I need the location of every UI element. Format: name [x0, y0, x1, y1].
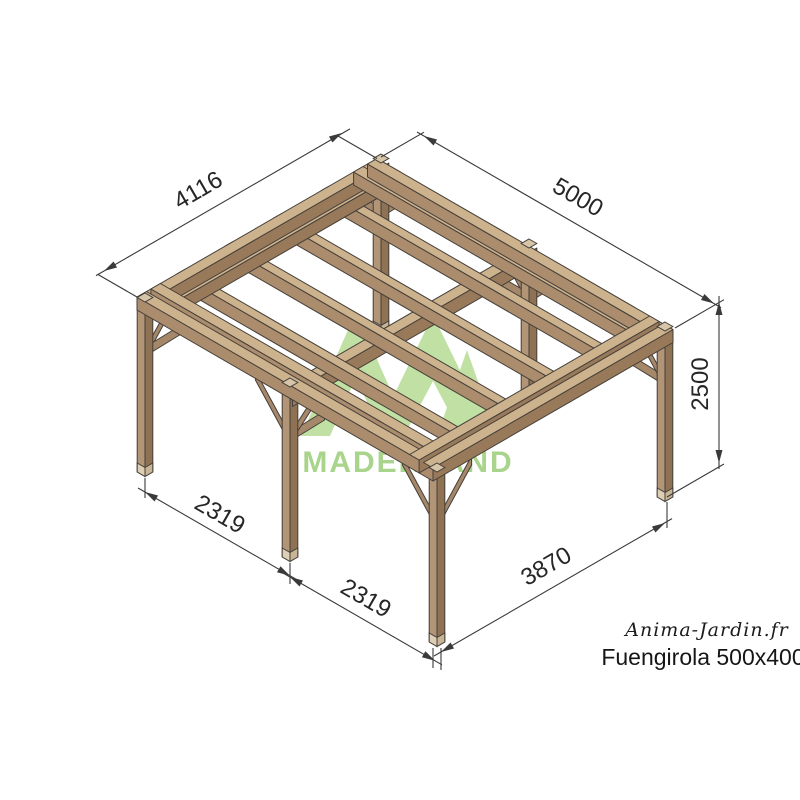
post-front — [402, 456, 471, 647]
dimension-label-5000: 5000 — [548, 172, 608, 222]
website-label: Anima-Jardin.fr — [623, 619, 789, 641]
dimension-2319-first: 2319 — [138, 478, 298, 584]
product-diagram-page: MADERLAND — [0, 0, 800, 800]
dimension-label-3870: 3870 — [516, 541, 576, 591]
dimension-label-2319-second: 2319 — [336, 573, 396, 623]
branding: Anima-Jardin.fr Fuengirola 500x400 — [601, 619, 800, 670]
dimension-label-4116: 4116 — [169, 166, 227, 215]
dimension-label-2500: 2500 — [687, 357, 714, 410]
dimension-2500: 2500 — [667, 296, 724, 497]
dimension-label-2319-first: 2319 — [190, 489, 250, 539]
pergola-structure — [137, 154, 673, 647]
product-name-label: Fuengirola 500x400 — [601, 644, 800, 670]
dimension-2319-second: 2319 — [283, 573, 442, 668]
pergola-technical-drawing: MADERLAND — [0, 0, 800, 800]
